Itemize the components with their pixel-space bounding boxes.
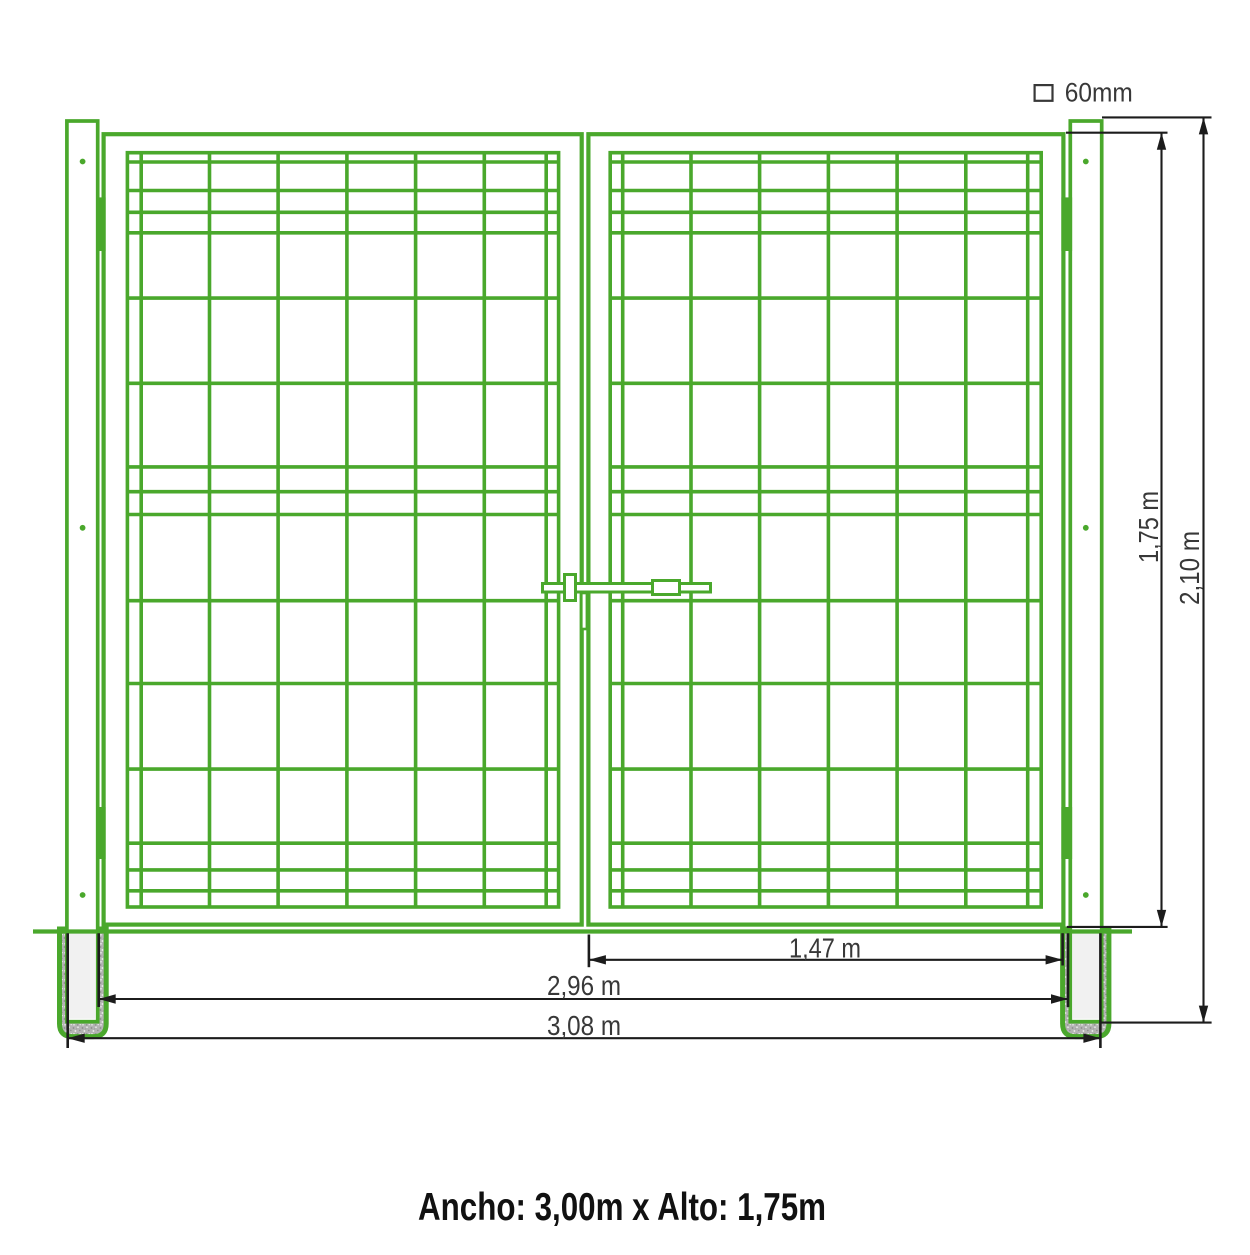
- svg-text:3,08 m: 3,08 m: [547, 1010, 621, 1041]
- svg-text:Ancho: 3,00m x Alto: 1,75m: Ancho: 3,00m x Alto: 1,75m: [418, 1186, 826, 1229]
- svg-text:1,75 m: 1,75 m: [1133, 491, 1164, 563]
- svg-text:60mm: 60mm: [1065, 78, 1133, 108]
- svg-text:1,47 m: 1,47 m: [789, 932, 861, 963]
- svg-text:2,96 m: 2,96 m: [547, 970, 621, 1001]
- svg-text:2,10 m: 2,10 m: [1174, 531, 1205, 605]
